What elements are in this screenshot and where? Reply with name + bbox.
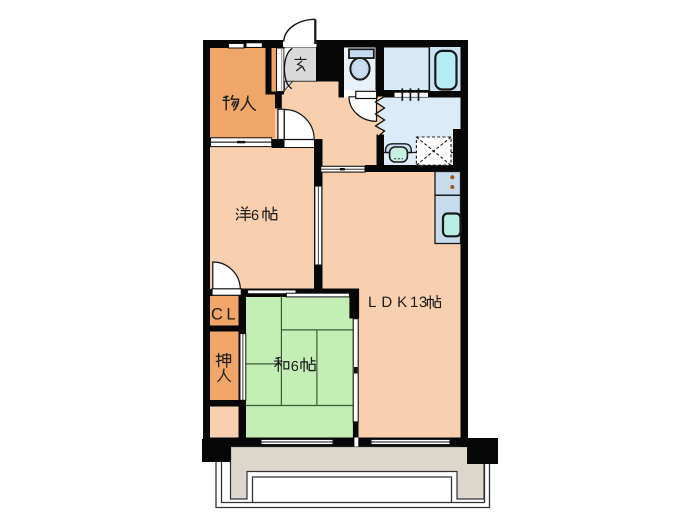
svg-text:6: 6 [291, 359, 299, 375]
svg-text:CL: CL [211, 306, 239, 324]
svg-text:13: 13 [410, 294, 428, 311]
svg-text:LDK: LDK [368, 294, 412, 311]
svg-text:6: 6 [251, 208, 259, 224]
